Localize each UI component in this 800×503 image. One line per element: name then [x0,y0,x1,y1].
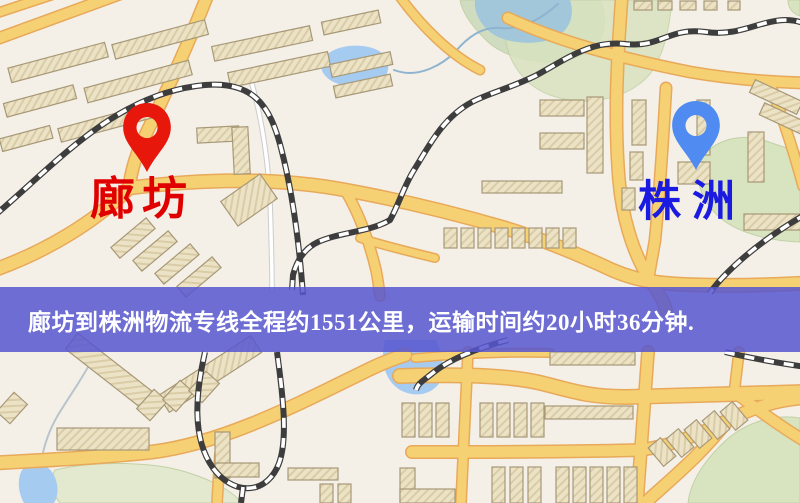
destination-pin-icon[interactable] [667,99,725,171]
route-info-banner: 廊坊到株洲物流专线全程约1551公里，运输时间约20小时36分钟. [0,287,800,352]
map-view: 廊坊 株洲 廊坊到株洲物流专线全程约1551公里，运输时间约20小时36分钟. [0,0,800,503]
map-background [0,0,800,503]
origin-label: 廊坊 [90,177,194,222]
destination-label: 株洲 [638,181,746,224]
route-info-text: 廊坊到株洲物流专线全程约1551公里，运输时间约20小时36分钟. [28,303,694,337]
origin-pin-icon[interactable] [118,101,176,173]
